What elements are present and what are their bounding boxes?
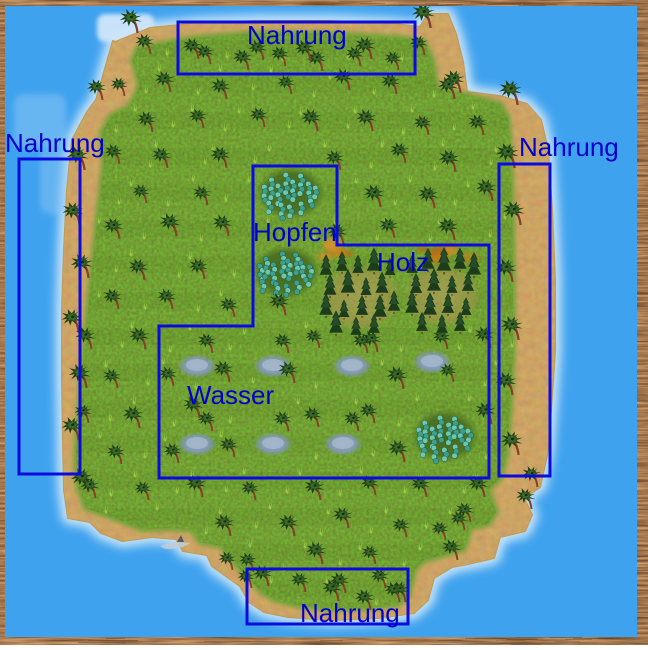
svg-text:Wasser: Wasser xyxy=(187,380,274,410)
svg-text:Nahrung: Nahrung xyxy=(519,132,619,162)
svg-text:Nahrung: Nahrung xyxy=(5,128,105,158)
svg-text:Nahrung: Nahrung xyxy=(247,20,347,50)
svg-text:Holz: Holz xyxy=(377,247,429,277)
svg-text:Hopfen: Hopfen xyxy=(253,217,337,247)
svg-text:Nahrung: Nahrung xyxy=(300,598,400,628)
